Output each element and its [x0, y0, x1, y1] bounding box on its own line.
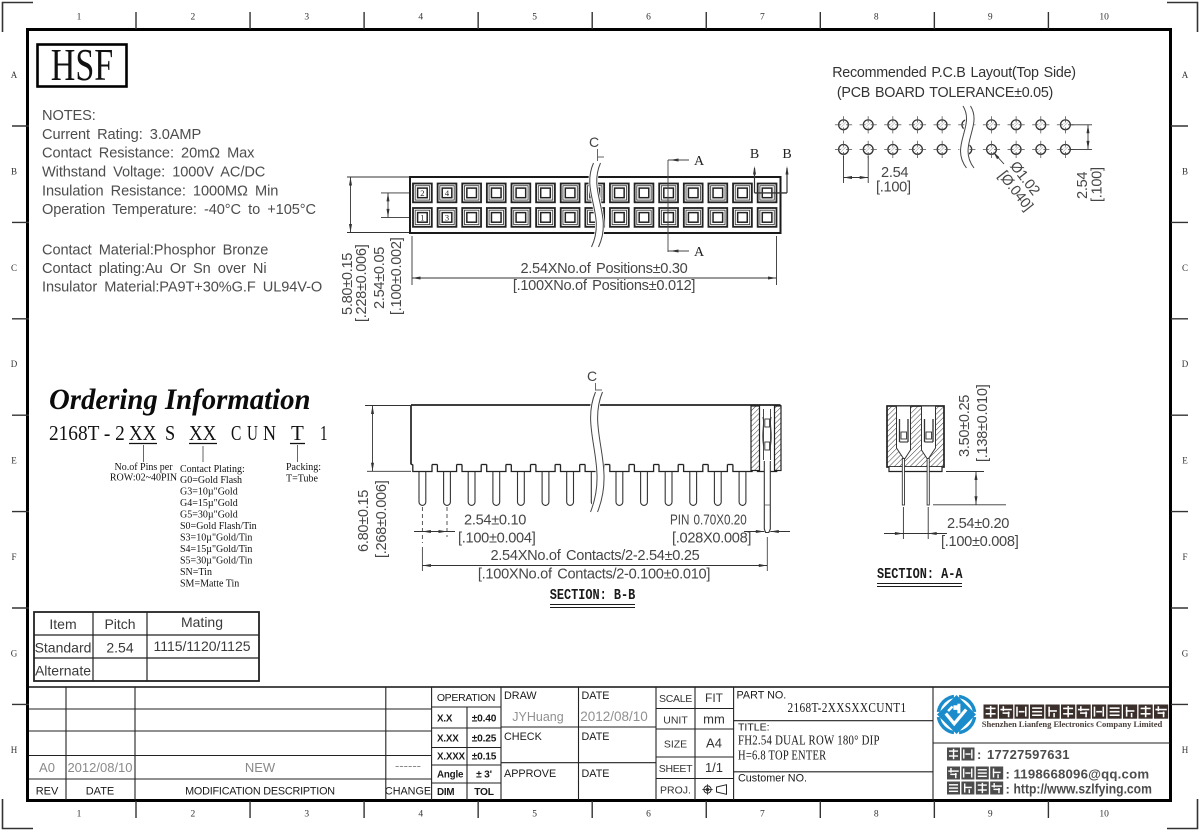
- svg-text:S: S: [165, 422, 175, 445]
- svg-text:T: T: [291, 421, 304, 445]
- svg-text:[.100]: [.100]: [1090, 167, 1106, 202]
- svg-text:Contact Material:Phosphor Bron: Contact Material:Phosphor Bronze: [42, 243, 268, 259]
- svg-text:Packing:: Packing:: [286, 462, 321, 473]
- svg-text:DATE: DATE: [86, 786, 115, 798]
- svg-text:3: 3: [304, 810, 309, 820]
- svg-text:JYHuang: JYHuang: [512, 710, 563, 724]
- svg-text:[.100XNo.of Positions±0.012]: [.100XNo.of Positions±0.012]: [513, 278, 696, 294]
- svg-text:B: B: [750, 147, 759, 162]
- svg-text:G4=15µ"Gold: G4=15µ"Gold: [180, 498, 238, 509]
- svg-text:H: H: [1182, 745, 1189, 755]
- svg-text:3: 3: [304, 13, 309, 23]
- svg-text:NEW: NEW: [245, 760, 276, 775]
- svg-text::: :: [1006, 767, 1010, 782]
- svg-text:X.X: X.X: [437, 714, 453, 725]
- svg-text:SECTION: A-A: SECTION: A-A: [877, 566, 963, 582]
- svg-text:1: 1: [420, 213, 424, 223]
- svg-text:8: 8: [874, 810, 879, 820]
- svg-text:[.228±0.006]: [.228±0.006]: [354, 244, 370, 322]
- svg-text:Insulator Material:PA9T+30%G.F: Insulator Material:PA9T+30%G.F UL94V-O: [42, 280, 322, 296]
- svg-text:5: 5: [532, 810, 537, 820]
- svg-text:[.028X0.008]: [.028X0.008]: [672, 531, 751, 547]
- svg-text:DATE: DATE: [582, 768, 610, 780]
- svg-text:S0=Gold Flash/Tin: S0=Gold Flash/Tin: [180, 521, 257, 532]
- svg-text:A0: A0: [39, 760, 55, 775]
- svg-text:E: E: [11, 456, 17, 466]
- svg-text:SM=Matte Tin: SM=Matte Tin: [180, 579, 239, 590]
- svg-text:2.54: 2.54: [106, 640, 133, 656]
- svg-text:1/1: 1/1: [705, 760, 723, 775]
- svg-text:DATE: DATE: [582, 731, 610, 743]
- svg-text:Recommended P.C.B Layout(Top S: Recommended P.C.B Layout(Top Side): [832, 65, 1076, 81]
- svg-text:7: 7: [760, 810, 765, 820]
- svg-text:A: A: [694, 245, 705, 260]
- svg-text::: :: [977, 747, 981, 762]
- svg-text:[.100±0.008]: [.100±0.008]: [941, 534, 1019, 550]
- svg-text:2.54±0.10: 2.54±0.10: [464, 513, 526, 529]
- svg-text:10: 10: [1099, 13, 1109, 23]
- svg-text:1115/1120/1125: 1115/1120/1125: [153, 638, 250, 654]
- svg-text:X.XXX: X.XXX: [437, 752, 466, 763]
- svg-text:Withstand Voltage: 1000V AC/DC: Withstand Voltage: 1000V AC/DC: [42, 165, 265, 181]
- svg-text:Pitch: Pitch: [104, 616, 135, 632]
- svg-text:HSF: HSF: [51, 39, 113, 90]
- svg-text:ROW:02~40PIN: ROW:02~40PIN: [110, 473, 177, 484]
- svg-text:2.54±0.05: 2.54±0.05: [372, 247, 388, 309]
- svg-text:B: B: [1182, 166, 1188, 176]
- svg-text:2: 2: [191, 810, 196, 820]
- svg-text:G5=30µ"Gold: G5=30µ"Gold: [180, 510, 238, 521]
- svg-text:Insulation Resistance: 1000MΩ: Insulation Resistance: 1000MΩ Min: [42, 184, 278, 200]
- svg-text:2012/08/10: 2012/08/10: [67, 760, 132, 775]
- svg-text:S4=15µ"Gold/Tin: S4=15µ"Gold/Tin: [180, 544, 252, 555]
- svg-text:Ordering Information: Ordering Information: [49, 383, 311, 416]
- svg-text:C: C: [11, 263, 17, 273]
- svg-text:S3=10µ"Gold/Tin: S3=10µ"Gold/Tin: [180, 533, 252, 544]
- svg-text:PART NO.: PART NO.: [737, 690, 787, 702]
- svg-text:Customer NO.: Customer NO.: [738, 773, 807, 785]
- svg-text:Standard: Standard: [35, 640, 92, 656]
- svg-text:± 3': ± 3': [476, 770, 492, 781]
- svg-text:8: 8: [874, 13, 879, 23]
- svg-text:D: D: [1182, 359, 1189, 369]
- svg-text:[.100±0.004]: [.100±0.004]: [458, 531, 536, 547]
- svg-text:No.of Pins per: No.of Pins per: [114, 462, 173, 473]
- svg-text:H: H: [11, 745, 18, 755]
- svg-text:4: 4: [418, 13, 423, 23]
- svg-text:[.138±0.010]: [.138±0.010]: [975, 384, 991, 462]
- svg-text:±0.25: ±0.25: [472, 734, 497, 745]
- svg-text:4: 4: [418, 810, 423, 820]
- svg-text:Contact Plating:: Contact Plating:: [180, 464, 245, 475]
- svg-text:9: 9: [988, 810, 993, 820]
- svg-text::: :: [1006, 782, 1010, 797]
- svg-text:2.54±0.20: 2.54±0.20: [947, 516, 1009, 532]
- svg-text:[.100±0.002]: [.100±0.002]: [389, 237, 405, 315]
- svg-text:[.100]: [.100]: [876, 180, 911, 196]
- svg-text:SCALE: SCALE: [659, 693, 692, 705]
- svg-text:A4: A4: [706, 736, 722, 751]
- svg-text:PROJ.: PROJ.: [660, 785, 691, 797]
- svg-text:2.54XNo.of Positions±0.30: 2.54XNo.of Positions±0.30: [520, 261, 687, 277]
- svg-text:D: D: [11, 359, 18, 369]
- svg-text:C: C: [231, 422, 241, 445]
- svg-text:5: 5: [532, 13, 537, 23]
- svg-text:3.50±0.25: 3.50±0.25: [957, 395, 973, 457]
- svg-text:Angle: Angle: [437, 770, 464, 781]
- svg-text:SIZE: SIZE: [664, 739, 687, 751]
- svg-text:B: B: [782, 147, 791, 162]
- svg-text:G3=10µ"Gold: G3=10µ"Gold: [180, 487, 238, 498]
- svg-text:Mating: Mating: [181, 614, 223, 630]
- svg-text:Alternate: Alternate: [35, 663, 91, 679]
- svg-text:XX: XX: [129, 422, 157, 445]
- svg-text:SN=Tin: SN=Tin: [180, 567, 212, 578]
- svg-text:CHANGE: CHANGE: [385, 786, 431, 798]
- svg-text:S5=30µ"Gold/Tin: S5=30µ"Gold/Tin: [180, 556, 252, 567]
- svg-text:1: 1: [320, 422, 328, 445]
- svg-text:9: 9: [988, 13, 993, 23]
- svg-text:SHEET: SHEET: [659, 763, 693, 775]
- svg-text:G: G: [1182, 648, 1189, 658]
- svg-text:2168T - 2: 2168T - 2: [49, 422, 125, 445]
- svg-text:[.268±0.006]: [.268±0.006]: [374, 480, 390, 558]
- svg-text:Contact Resistance: 20mΩ Max: Contact Resistance: 20mΩ Max: [42, 146, 255, 162]
- svg-text:10: 10: [1099, 810, 1109, 820]
- svg-text:2.54XNo.of Contacts/2-2.54±0.2: 2.54XNo.of Contacts/2-2.54±0.25: [490, 548, 699, 564]
- svg-text:3: 3: [445, 213, 449, 223]
- svg-text:B: B: [11, 166, 17, 176]
- svg-text:Item: Item: [49, 616, 76, 632]
- svg-text:APPROVE: APPROVE: [504, 768, 556, 780]
- svg-text:7: 7: [760, 13, 765, 23]
- svg-text:4: 4: [445, 188, 450, 198]
- svg-text:DATE: DATE: [582, 690, 610, 702]
- svg-text:Current Rating: 3.0AMP: Current Rating: 3.0AMP: [42, 127, 201, 143]
- svg-text:PIN 0.70X0.20: PIN 0.70X0.20: [670, 511, 747, 528]
- svg-text:NOTES:: NOTES:: [42, 108, 96, 124]
- svg-text:SECTION: B-B: SECTION: B-B: [550, 587, 636, 603]
- svg-text:[.100XNo.of Contacts/2-0.100±0: [.100XNo.of Contacts/2-0.100±0.010]: [478, 567, 710, 583]
- svg-text:FH2.54 DUAL ROW 180° DIP: FH2.54 DUAL ROW 180° DIP: [738, 732, 880, 747]
- svg-text:C: C: [1182, 263, 1188, 273]
- svg-text:T=Tube: T=Tube: [286, 474, 319, 485]
- svg-text:A: A: [1182, 70, 1189, 80]
- svg-text:2: 2: [420, 188, 424, 198]
- svg-text:A: A: [694, 154, 705, 169]
- svg-text:1: 1: [77, 13, 82, 23]
- svg-text:Contact plating:Au Or Sn over: Contact plating:Au Or Sn over Ni: [42, 261, 267, 277]
- svg-text:Shenzhen Lianfeng Electronics: Shenzhen Lianfeng Electronics Company Li…: [982, 719, 1163, 729]
- svg-text:mm: mm: [703, 712, 725, 727]
- svg-text:REV: REV: [36, 786, 59, 798]
- svg-text:E: E: [1182, 456, 1188, 466]
- svg-text:±0.40: ±0.40: [472, 714, 497, 725]
- svg-text:X.XX: X.XX: [437, 734, 459, 745]
- svg-text:XX: XX: [189, 422, 217, 445]
- svg-text:Operation Temperature: -40°C t: Operation Temperature: -40°C to +105°C: [42, 202, 316, 218]
- svg-text:2012/08/10: 2012/08/10: [580, 709, 648, 724]
- svg-text:1: 1: [77, 810, 82, 820]
- svg-text:G: G: [11, 648, 18, 658]
- svg-text:TOL: TOL: [474, 787, 494, 798]
- svg-text:http://www.szlfying.com: http://www.szlfying.com: [1014, 781, 1152, 797]
- svg-text:FIT: FIT: [705, 691, 724, 705]
- svg-text:DIM: DIM: [437, 787, 454, 798]
- svg-text:1198668096@qq.com: 1198668096@qq.com: [1014, 767, 1150, 782]
- svg-text:CHECK: CHECK: [504, 731, 543, 743]
- svg-text:(PCB BOARD TOLERANCE±0.05): (PCB BOARD TOLERANCE±0.05): [837, 85, 1053, 101]
- svg-text:C: C: [589, 134, 599, 150]
- svg-text:------: ------: [395, 758, 421, 773]
- svg-text:OPERATION: OPERATION: [437, 692, 495, 704]
- svg-text:H=6.8 TOP ENTER: H=6.8 TOP ENTER: [738, 747, 827, 763]
- svg-text:MODIFICATION DESCRIPTION: MODIFICATION DESCRIPTION: [185, 786, 335, 798]
- svg-text:DRAW: DRAW: [504, 690, 537, 702]
- svg-text:G0=Gold Flash: G0=Gold Flash: [180, 475, 242, 486]
- svg-text:N: N: [263, 423, 276, 446]
- svg-text:2168T-2XXSXXCUNT1: 2168T-2XXSXXCUNT1: [788, 700, 907, 715]
- svg-text:6: 6: [646, 810, 651, 820]
- svg-text:6: 6: [646, 13, 651, 23]
- svg-text:2: 2: [191, 13, 196, 23]
- svg-text:C: C: [587, 368, 597, 384]
- svg-text:±0.15: ±0.15: [472, 752, 497, 763]
- svg-text:F: F: [1182, 552, 1187, 562]
- svg-text:U: U: [247, 422, 258, 445]
- svg-text:A: A: [11, 70, 18, 80]
- svg-text:17727597631: 17727597631: [987, 747, 1070, 762]
- svg-text:6.80±0.15: 6.80±0.15: [356, 490, 372, 552]
- svg-text:UNIT: UNIT: [663, 715, 688, 727]
- svg-text:F: F: [11, 552, 16, 562]
